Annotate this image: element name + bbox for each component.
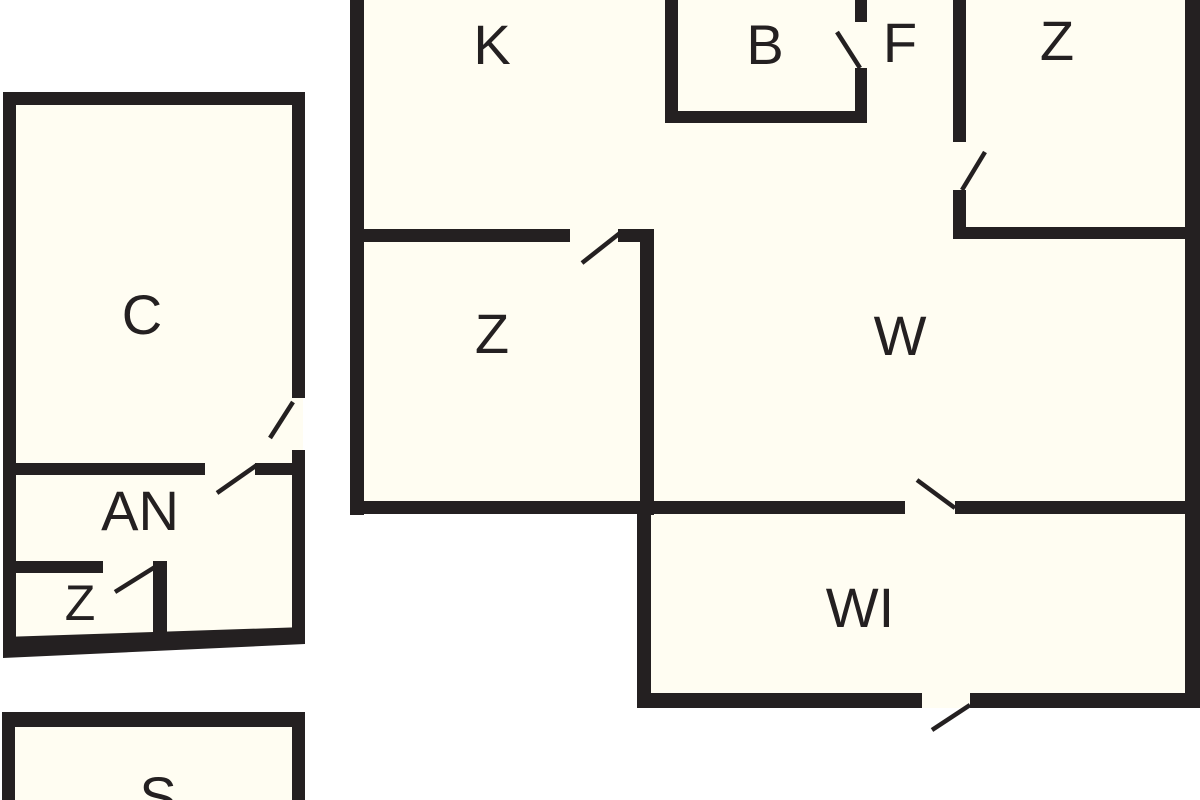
b-right-wall-stub — [855, 0, 867, 22]
wi-bottom-wall-right — [970, 693, 1200, 708]
b-right-wall-lower — [855, 68, 867, 123]
main-right-wall — [1185, 0, 1200, 708]
shed-right-wall — [292, 712, 305, 800]
room-label-z-small: Z — [65, 575, 96, 631]
main-house-floor — [350, 0, 1200, 514]
an-z-divider-wall — [3, 561, 103, 573]
room-label-z-top: Z — [1040, 9, 1074, 72]
floor-fills — [4, 0, 1200, 800]
room-label-b: B — [746, 13, 783, 76]
z-top-bottom-wall — [953, 227, 1200, 239]
annex-right-wall-lower — [292, 450, 305, 642]
w-wi-divider-wall-left — [350, 501, 905, 514]
room-label-k: K — [473, 13, 510, 76]
wi-bottom-wall-left — [637, 693, 922, 708]
room-label-f: F — [883, 11, 917, 74]
b-left-wall — [665, 0, 678, 123]
room-label-w: W — [874, 304, 927, 367]
room-label-c: C — [122, 283, 162, 346]
floor-plan: K B F Z Z W WI C AN Z S — [0, 0, 1200, 800]
main-left-wall — [350, 0, 364, 515]
wi-exterior-door-swing — [932, 705, 970, 730]
wi-left-wall — [637, 501, 651, 708]
room-label-s: S — [139, 765, 176, 800]
room-label-wi: WI — [826, 576, 894, 639]
shed-left-wall — [2, 712, 15, 800]
annex-top-wall — [3, 92, 305, 105]
k-bottom-wall — [363, 229, 570, 242]
wi-room-floor — [637, 500, 1200, 708]
annex-floor — [5, 94, 303, 642]
floor-plan-canvas: K B F Z Z W WI C AN Z S — [0, 0, 1200, 800]
z-middle-right-wall — [640, 229, 654, 515]
room-label-an: AN — [101, 479, 179, 542]
z-small-right-wall — [153, 561, 167, 643]
room-label-z-middle: Z — [475, 302, 509, 365]
c-an-divider-wall-left — [3, 463, 205, 475]
shed-top-wall — [2, 712, 305, 727]
annex-right-wall-upper — [292, 92, 305, 398]
b-bottom-wall — [665, 111, 867, 123]
f-z-divider-wall-upper — [953, 0, 966, 142]
w-wi-divider-wall-right — [955, 501, 1200, 514]
c-an-divider-wall-right — [255, 463, 305, 475]
